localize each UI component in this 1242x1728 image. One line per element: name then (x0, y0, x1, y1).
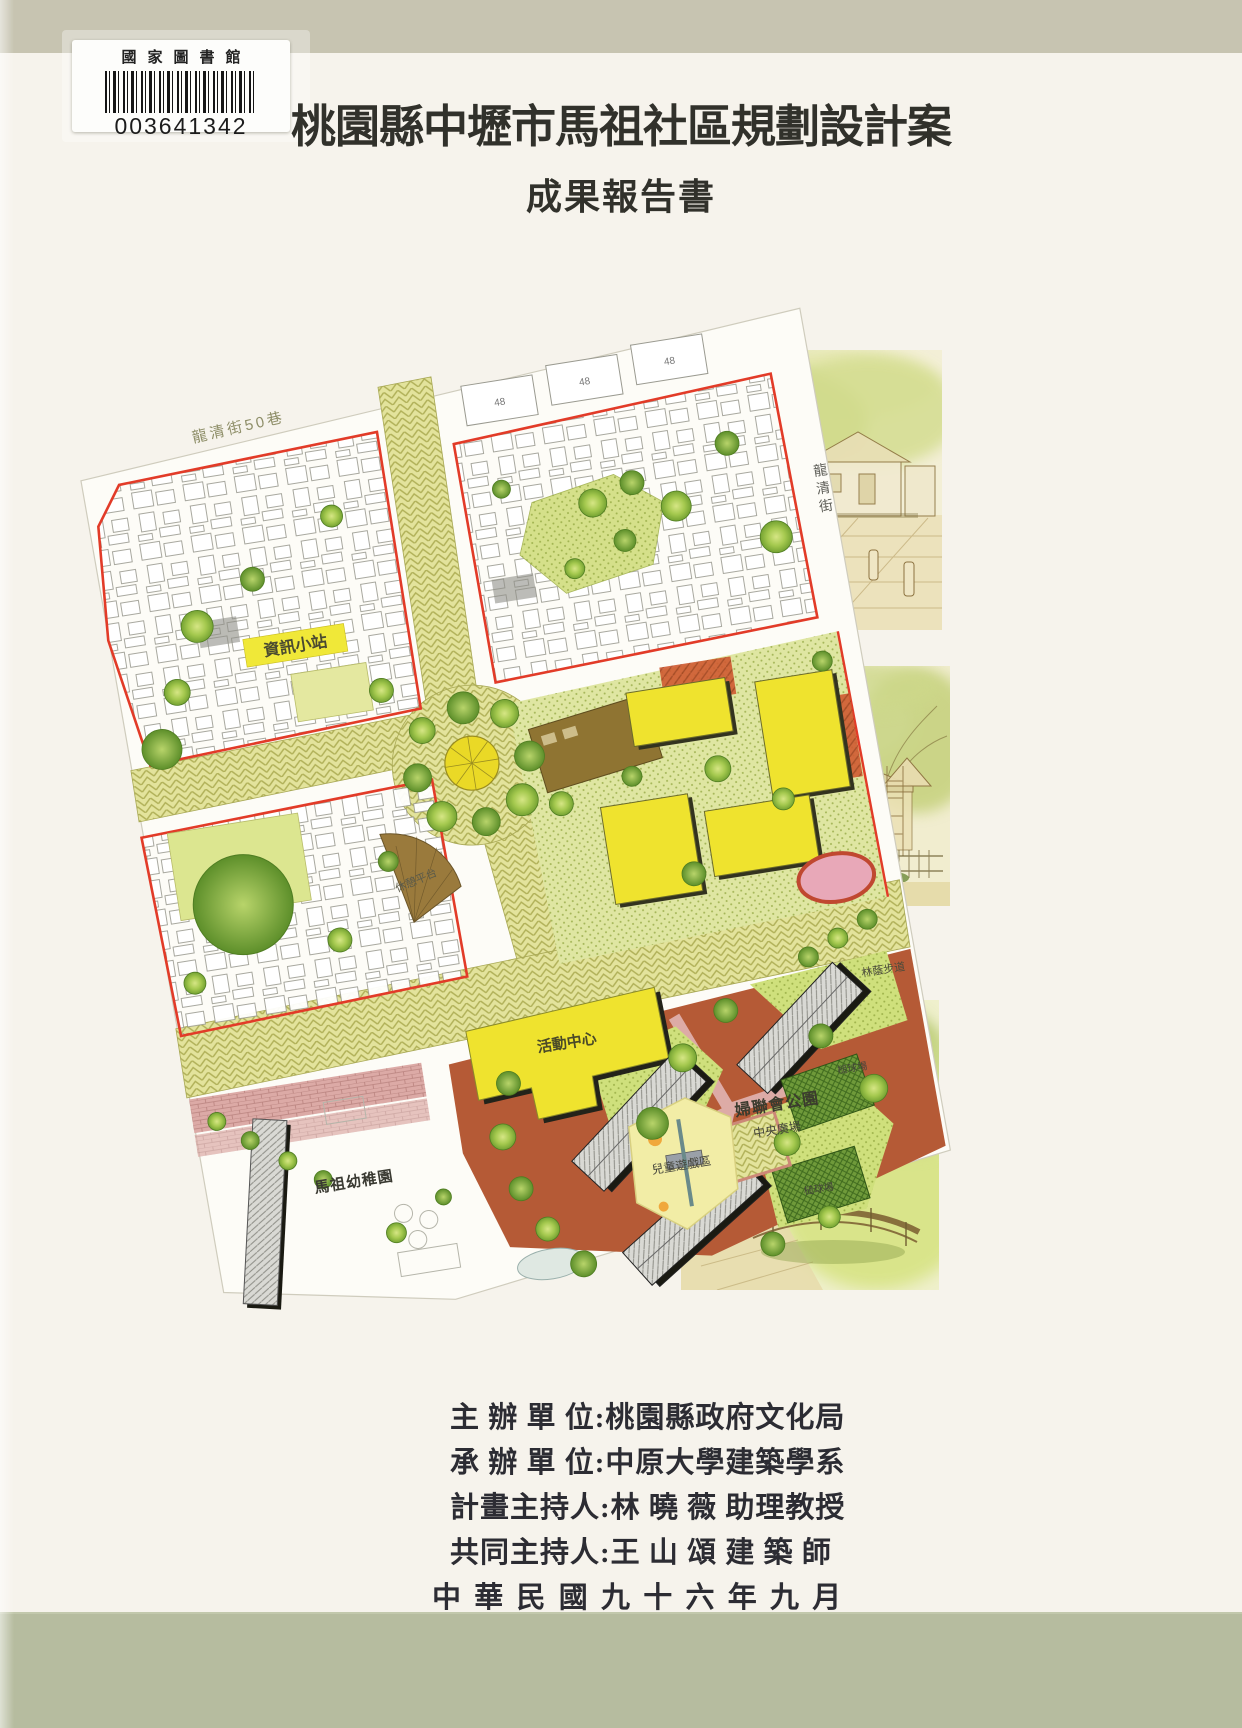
credit-co-leader: 共同主持人:王 山 頌 建 築 師 (450, 1531, 845, 1576)
publication-date: 中 華 民 國 九 十 六 年 九 月 (432, 1576, 845, 1621)
site-plan-map: 48 48 48 (72, 282, 962, 1322)
lot-number: 48 (494, 396, 507, 409)
credits-block: 主 辦 單 位:桃園縣政府文化局 承 辦 單 位:中原大學建築學系 計畫主持人:… (450, 1396, 845, 1621)
credit-undertaker: 承 辦 單 位:中原大學建築學系 (450, 1441, 845, 1486)
report-title: 桃園縣中壢市馬祖社區規劃設計案 (0, 90, 1242, 155)
lot-number: 48 (663, 355, 676, 368)
svg-text:街: 街 (818, 497, 834, 515)
report-cover-page: 國家圖書館 003641342 桃園縣中壢市馬祖社區規劃設計案 成果報告書 (0, 0, 1242, 1728)
book-spine-edge (0, 0, 14, 1728)
bottom-color-band (0, 1612, 1242, 1728)
lot-number: 48 (578, 376, 591, 389)
credit-project-leader: 計畫主持人:林 曉 薇 助理教授 (450, 1486, 845, 1531)
svg-text:清: 清 (815, 479, 831, 497)
library-name: 國家圖書館 (72, 46, 290, 67)
credit-organizer: 主 辦 單 位:桃園縣政府文化局 (450, 1396, 845, 1441)
report-subtitle: 成果報告書 (0, 168, 1242, 220)
svg-text:龍: 龍 (812, 461, 828, 479)
